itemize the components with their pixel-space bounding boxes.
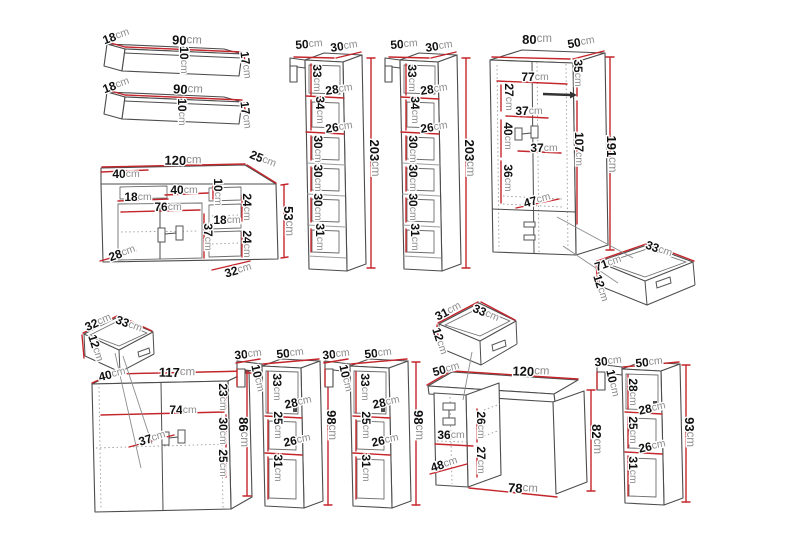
dimension-label: 40cm — [170, 183, 198, 197]
dimension-label: 40cm — [501, 122, 515, 150]
dimension-label: 30cm — [406, 135, 420, 163]
dimension-label: 25cm — [248, 147, 279, 170]
dimension-label: 25cm — [359, 411, 373, 439]
wardrobe-drawer-detail — [596, 244, 695, 305]
dimension-label: 31cm — [313, 223, 327, 251]
dimension-label: 25cm — [271, 411, 285, 439]
dimension-label: 78cm — [508, 479, 539, 496]
dimension-label: 93cm — [683, 417, 698, 447]
dimension-label: 36cm — [437, 428, 465, 442]
dimension-label: 23cm — [216, 383, 230, 411]
dimension-label: 50cm — [295, 36, 324, 52]
dimension-label: 30cm — [216, 417, 230, 445]
dimension-label: 82cm — [590, 424, 605, 454]
dimension-label: 50cm — [276, 345, 305, 362]
dimension-label: 27cm — [502, 83, 516, 111]
dimension-label: 77cm — [521, 70, 549, 84]
dimension-label: 27cm — [474, 446, 488, 474]
dimension-label: 10cm — [177, 46, 191, 74]
dimension-label: 18cm — [124, 190, 152, 204]
dimension-label: 98cm — [412, 410, 427, 440]
dimension-label: 18cm — [213, 213, 241, 227]
dimension-label: 33cm — [358, 373, 372, 401]
dimension-label: 53cm — [282, 206, 297, 236]
dimension-label: 30cm — [311, 135, 325, 163]
dimension-label: 30cm — [311, 193, 325, 221]
dimension-label: 40cm — [112, 167, 140, 181]
dimension-label: 32cm — [223, 259, 253, 280]
dimension-label: 25cm — [216, 449, 230, 477]
dimension-label: 35cm — [571, 59, 585, 87]
dimension-label: 12cm — [590, 273, 611, 303]
dimension-label: 31cm — [626, 456, 640, 484]
dimension-label: 120cm — [512, 363, 550, 379]
dimension-label: 37cm — [530, 141, 558, 155]
dimension-label: 30cm — [329, 37, 358, 55]
dimension-label: 203cm — [368, 139, 383, 176]
dimension-label: 10cm — [175, 98, 189, 126]
dimension-label: 24cm — [240, 230, 254, 258]
dimension-label: 17cm — [237, 51, 254, 80]
dimension-label: 36cm — [501, 164, 515, 192]
dimension-label: 76cm — [154, 200, 182, 214]
dimension-label: 31cm — [271, 454, 285, 482]
dimension-label: 31cm — [408, 223, 422, 251]
dimension-label: 30cm — [424, 37, 453, 55]
dimension-label: 120cm — [164, 152, 201, 168]
wall-shelf-top — [104, 42, 247, 76]
dimension-label: 30cm — [311, 164, 325, 192]
dimension-label: 17cm — [237, 101, 254, 130]
dimension-label: 191cm — [605, 135, 620, 172]
dimension-label: 90cm — [173, 81, 204, 98]
dimension-label: 117cm — [159, 364, 196, 380]
dimension-label: 34cm — [408, 96, 422, 124]
dimension-label: 24cm — [240, 193, 254, 221]
dimension-label: 37cm — [201, 223, 215, 251]
dimension-label: 98cm — [325, 410, 340, 440]
dimension-label: 28cm — [626, 378, 640, 406]
dimension-label: 80cm — [522, 32, 552, 47]
dimension-label: 74cm — [169, 403, 197, 417]
dimension-label: 33cm — [310, 64, 324, 92]
dimension-label: 33cm — [405, 64, 419, 92]
dimension-label: 12cm — [429, 326, 450, 356]
dimension-label: 203cm — [463, 139, 478, 176]
dimension-label: 50cm — [390, 36, 419, 52]
dimension-label: 50cm — [364, 345, 393, 362]
dimension-label: 33cm — [270, 373, 284, 401]
dimension-label: 25cm — [626, 416, 640, 444]
dimension-label: 30cm — [406, 164, 420, 192]
dimension-label: 31cm — [359, 454, 373, 482]
dimension-label: 34cm — [313, 96, 327, 124]
dimension-label: 30cm — [406, 193, 420, 221]
furniture-dimensions-diagram: 18cm90cm10cm17cm18cm90cm10cm17cm120cm25c… — [0, 0, 800, 533]
dimension-label: 86cm — [237, 417, 252, 447]
dimension-label: 26cm — [474, 411, 488, 439]
dimension-label: 107cm — [572, 132, 586, 166]
dimension-label: 50cm — [566, 33, 596, 52]
dimension-label: 10cm — [211, 178, 225, 206]
dimension-label: 37cm — [515, 104, 543, 118]
